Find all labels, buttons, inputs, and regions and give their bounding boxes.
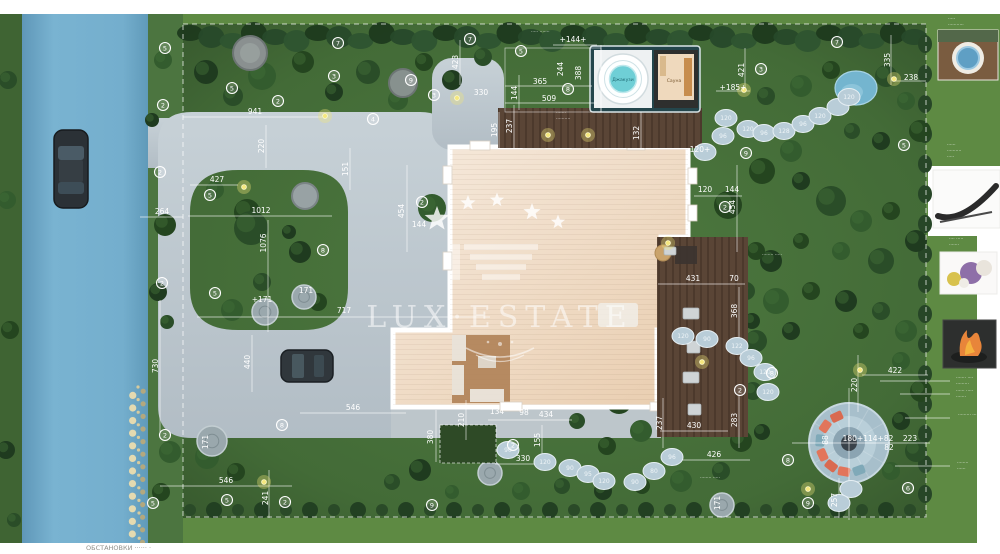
measurement-label: 426 bbox=[707, 450, 722, 459]
hedge-bush bbox=[624, 22, 650, 44]
measurement-label: 98 bbox=[519, 408, 529, 417]
tree-highlight bbox=[911, 122, 923, 134]
measurement-label: 509 bbox=[542, 94, 557, 103]
measurement-label: 155 bbox=[533, 433, 542, 448]
stone-size-label: 128 bbox=[778, 128, 790, 135]
micro-label: ····· ······· bbox=[531, 30, 550, 35]
tree-highlight bbox=[854, 324, 863, 333]
roof-block bbox=[470, 141, 490, 150]
plant-marker-number: 8 bbox=[321, 246, 325, 254]
hedge-bush bbox=[918, 485, 932, 503]
hedge-bush bbox=[686, 502, 702, 518]
tree-highlight bbox=[444, 72, 455, 83]
stone-size-label: 90 bbox=[566, 465, 574, 472]
pebble bbox=[137, 436, 140, 439]
tree-highlight bbox=[755, 425, 764, 434]
tree-highlight bbox=[0, 72, 10, 82]
tree-highlight bbox=[570, 414, 579, 423]
pebble bbox=[140, 502, 145, 507]
micro-label: ······ bbox=[957, 467, 966, 472]
hedge-bush bbox=[918, 215, 932, 233]
road bbox=[22, 14, 148, 543]
measurement-label: 237 bbox=[505, 119, 514, 134]
plant-marker-number: 9 bbox=[430, 501, 434, 509]
measurement-label: 171 bbox=[299, 286, 314, 295]
plant-marker-number: 8 bbox=[566, 85, 570, 93]
tree-highlight bbox=[873, 303, 883, 313]
measurement-label: 151 bbox=[341, 162, 350, 177]
hedge-bush bbox=[710, 26, 736, 48]
pebble bbox=[137, 486, 140, 489]
hedge-bush bbox=[398, 502, 414, 518]
measurement-label: 241 bbox=[261, 491, 270, 506]
measurement-label: 244 bbox=[556, 62, 565, 77]
stone-size-label: 120 bbox=[814, 113, 826, 120]
pebble bbox=[129, 430, 136, 437]
plant-marker-number: 3 bbox=[332, 72, 336, 80]
plant-marker-number: 5 bbox=[519, 47, 523, 55]
measurement-label: 1012 bbox=[251, 206, 270, 215]
tree-highlight bbox=[196, 62, 209, 75]
tree-highlight bbox=[897, 322, 909, 334]
hedge-bush bbox=[918, 155, 932, 173]
hedge-bush bbox=[918, 335, 932, 353]
plant-marker-number: 4 bbox=[371, 115, 375, 123]
tree-highlight bbox=[883, 203, 893, 213]
hedge-bush bbox=[734, 502, 750, 518]
measurement-label: 368 bbox=[730, 304, 739, 319]
measurement-label: 365 bbox=[533, 77, 548, 86]
micro-label: ·········· bbox=[556, 117, 570, 122]
plant-marker-number: 8 bbox=[770, 369, 774, 377]
landscape-plan-canvas: Джакузи Сауна bbox=[0, 0, 1000, 554]
tree-highlight bbox=[803, 283, 813, 293]
top-margin bbox=[0, 0, 1000, 14]
pebble bbox=[140, 489, 145, 494]
plant-marker-number: 2 bbox=[161, 101, 165, 109]
car-on-road bbox=[54, 130, 88, 208]
measurement-label: 210 bbox=[457, 413, 466, 428]
watermark-text: LUX·ESTATE bbox=[366, 300, 633, 335]
tree-highlight bbox=[599, 438, 609, 448]
pebble bbox=[129, 404, 136, 411]
tree-highlight bbox=[794, 234, 803, 243]
tree-highlight bbox=[747, 332, 759, 344]
hedge-bush bbox=[880, 22, 906, 44]
measurement-label: 717 bbox=[337, 306, 352, 315]
measurement-label: 335 bbox=[883, 53, 892, 68]
measurement-label: 431 bbox=[686, 274, 701, 283]
pebble bbox=[129, 442, 136, 449]
measurement-label: 388 bbox=[574, 66, 583, 81]
stone-size-label: 95 bbox=[584, 471, 592, 478]
millstone bbox=[478, 461, 502, 485]
measurement-label: 171 bbox=[713, 496, 722, 511]
hedge-bush bbox=[568, 504, 580, 516]
plant-marker-number: 2 bbox=[420, 198, 424, 206]
tree-highlight bbox=[223, 301, 235, 313]
site-plan-render: Джакузи Сауна bbox=[0, 0, 1000, 554]
hedge-bush bbox=[918, 305, 932, 323]
tree-highlight bbox=[2, 322, 12, 332]
corner-note: ОБСТАНОВКИ ······ · bbox=[86, 544, 151, 552]
tree-highlight bbox=[161, 316, 169, 324]
pebble bbox=[137, 499, 140, 502]
tree-highlight bbox=[758, 88, 768, 98]
plant-marker-number: 5 bbox=[208, 191, 212, 199]
pebble bbox=[138, 537, 141, 540]
measurement-label: 330 bbox=[516, 454, 531, 463]
micro-label: ········· ···· bbox=[958, 413, 978, 418]
stone-size-label: 90 bbox=[631, 479, 639, 486]
tree-highlight bbox=[877, 67, 889, 79]
hedge-bush bbox=[918, 275, 932, 293]
hedge-bush bbox=[520, 504, 532, 516]
plant-marker-number: 2 bbox=[163, 431, 167, 439]
left-grass-strip bbox=[0, 14, 22, 543]
hedge-bush bbox=[350, 502, 366, 518]
tree-highlight bbox=[294, 53, 306, 65]
measurement-label: 427 bbox=[210, 175, 225, 184]
measurement-label: 120+ bbox=[690, 145, 711, 154]
tree-highlight bbox=[632, 422, 644, 434]
pebble bbox=[137, 398, 140, 401]
hedge-bush bbox=[918, 65, 932, 83]
hedge-bush bbox=[856, 504, 868, 516]
tree-highlight bbox=[358, 62, 371, 75]
hedge-bush bbox=[904, 504, 916, 516]
hedge-bush bbox=[198, 26, 224, 48]
measurement-label: 171 bbox=[201, 435, 210, 450]
measurement-label: +171 bbox=[252, 295, 273, 304]
hedge-bush bbox=[590, 502, 606, 518]
plant-marker-number: 5 bbox=[213, 289, 217, 297]
pebble bbox=[138, 524, 141, 527]
tree-highlight bbox=[283, 226, 291, 234]
hedge-bush bbox=[664, 504, 676, 516]
tree-highlight bbox=[161, 443, 173, 455]
hedge-bush bbox=[878, 502, 894, 518]
garden-light bbox=[858, 368, 863, 373]
measurement-label: 70 bbox=[729, 274, 739, 283]
pebble bbox=[140, 477, 145, 482]
measurement-label: 421 bbox=[737, 63, 746, 78]
garden-light bbox=[262, 480, 267, 485]
hedge-bush bbox=[232, 504, 244, 516]
hedge-bush bbox=[328, 504, 340, 516]
pebble bbox=[137, 448, 140, 451]
tree-highlight bbox=[893, 353, 903, 363]
hedge-bush bbox=[542, 502, 558, 518]
micro-label: ······· bbox=[949, 243, 959, 248]
measurement-label: 380 bbox=[426, 430, 435, 445]
pebble bbox=[140, 439, 145, 444]
measurement-label: 238 bbox=[904, 73, 919, 82]
measurement-label: 430 bbox=[687, 421, 702, 430]
tree-highlight bbox=[156, 216, 168, 228]
tree-highlight bbox=[513, 483, 523, 493]
hedge-bush bbox=[494, 502, 510, 518]
pebble bbox=[137, 411, 140, 414]
tree-highlight bbox=[793, 173, 803, 183]
plant-marker-number: 9 bbox=[806, 499, 810, 507]
hedge-bush bbox=[760, 504, 772, 516]
pebble bbox=[129, 493, 136, 500]
plant-marker-number: 5 bbox=[163, 44, 167, 52]
measurement-label: +144+ bbox=[560, 35, 587, 44]
plant-marker-number: 2 bbox=[158, 168, 162, 176]
measurement-label: 220 bbox=[850, 378, 859, 393]
pebble bbox=[137, 423, 140, 426]
measurement-label: 195 bbox=[490, 123, 499, 138]
parked-car bbox=[281, 350, 333, 382]
tree-highlight bbox=[907, 442, 919, 454]
micro-label: ·········· bbox=[947, 149, 961, 154]
stone-size-label: 120 bbox=[598, 478, 610, 485]
tree-highlight bbox=[146, 114, 154, 122]
hedge-bush bbox=[369, 22, 395, 44]
measurement-label: 88 bbox=[821, 435, 830, 445]
measurement-label: 283 bbox=[730, 413, 739, 428]
measurement-label: 180+114+82 bbox=[843, 434, 894, 443]
measurement-label: 134 bbox=[490, 407, 505, 416]
pebble bbox=[137, 461, 140, 464]
garden-light bbox=[586, 133, 591, 138]
pebble bbox=[140, 426, 145, 431]
hedge-bush bbox=[616, 504, 628, 516]
plant-marker-number: 7 bbox=[835, 38, 839, 46]
micro-label: ······· bbox=[556, 111, 566, 116]
stone-size-label: 90 bbox=[703, 336, 711, 343]
plant-marker-number: 7 bbox=[336, 39, 340, 47]
stone-size-label: 80 bbox=[650, 468, 658, 475]
tree-highlight bbox=[765, 290, 779, 304]
hedge-bush bbox=[638, 502, 654, 518]
tree-highlight bbox=[446, 486, 454, 494]
tree-highlight bbox=[883, 463, 893, 473]
garden-light bbox=[323, 114, 328, 119]
plant-marker-number: 5 bbox=[230, 84, 234, 92]
tree-highlight bbox=[748, 243, 758, 253]
plant-marker-number: 9 bbox=[744, 149, 748, 157]
pebble bbox=[137, 474, 140, 477]
plant-marker-number: 5 bbox=[902, 141, 906, 149]
measurement-label: 330 bbox=[474, 88, 489, 97]
tree-highlight bbox=[782, 142, 794, 154]
tree-highlight bbox=[8, 514, 16, 522]
measurement-label: 454 bbox=[397, 204, 406, 219]
plant-marker-number: 2 bbox=[276, 97, 280, 105]
plant-marker-number: 7 bbox=[468, 35, 472, 43]
plant-marker-number: 2 bbox=[160, 279, 164, 287]
measurement-label: 546 bbox=[346, 403, 361, 412]
hedge-bush bbox=[472, 504, 484, 516]
stone-size-label: 120 bbox=[720, 115, 732, 122]
micro-label: ········· bbox=[956, 382, 969, 387]
tree-highlight bbox=[833, 243, 843, 253]
measurement-label: 730 bbox=[151, 359, 160, 374]
pebble bbox=[140, 464, 145, 469]
pebble bbox=[140, 527, 145, 532]
hammock-photo bbox=[933, 170, 1000, 228]
pebble bbox=[129, 417, 136, 424]
garden-light bbox=[700, 360, 705, 365]
measurement-label: 422 bbox=[888, 366, 903, 375]
hedge-bush bbox=[302, 502, 318, 518]
tree-highlight bbox=[475, 49, 485, 59]
tree-highlight bbox=[870, 250, 884, 264]
tree-highlight bbox=[837, 292, 849, 304]
pebble bbox=[129, 467, 136, 474]
plant-marker-number: 3 bbox=[432, 91, 436, 99]
stone-size-label: 120 bbox=[762, 389, 774, 396]
roof-block bbox=[688, 168, 697, 184]
pebble bbox=[140, 452, 145, 457]
micro-label: ········ bbox=[957, 461, 968, 466]
hedge-bush bbox=[918, 35, 932, 53]
hedge-bush bbox=[206, 502, 222, 518]
tree-highlight bbox=[672, 472, 684, 484]
pebble bbox=[129, 455, 136, 462]
stone-size-label: 120 bbox=[677, 333, 689, 340]
plant-marker-number: 3 bbox=[759, 65, 763, 73]
plant-marker-number: 8 bbox=[786, 456, 790, 464]
pergola bbox=[675, 246, 697, 264]
tree-highlight bbox=[385, 475, 394, 484]
tree-highlight bbox=[893, 413, 903, 423]
stone-size-label: 96 bbox=[799, 121, 807, 128]
stone-size-label: 96 bbox=[719, 133, 727, 140]
garden-light bbox=[242, 185, 247, 190]
pebble bbox=[140, 414, 145, 419]
measurement-label: +185+ bbox=[720, 83, 747, 92]
hedge-bush bbox=[376, 504, 388, 516]
tree-highlight bbox=[912, 382, 924, 394]
garden-light bbox=[892, 77, 897, 82]
hot-tub-photo bbox=[938, 30, 998, 80]
measurement-label: 237 bbox=[655, 416, 664, 431]
roof-block bbox=[688, 205, 697, 221]
pebble bbox=[129, 518, 136, 525]
tree-highlight bbox=[792, 77, 804, 89]
plant-marker-number: 5 bbox=[151, 499, 155, 507]
planting-bed bbox=[440, 425, 496, 463]
tree-highlight bbox=[751, 160, 765, 174]
micro-label: ······ ····· bbox=[956, 389, 973, 394]
measurement-label: 220 bbox=[257, 139, 266, 154]
tree-highlight bbox=[818, 188, 835, 205]
hedge-bush bbox=[446, 502, 462, 518]
jacuzzi-label: Джакузи bbox=[612, 77, 633, 83]
pebble bbox=[129, 530, 136, 537]
measurement-label: 144 bbox=[510, 86, 519, 101]
micro-label: ···· ····· bbox=[949, 237, 963, 242]
stone-size-label: 96 bbox=[668, 454, 676, 461]
fire-bowl-photo bbox=[943, 320, 996, 368]
measurement-label: 440 bbox=[243, 355, 252, 370]
hedge-bush bbox=[918, 425, 932, 443]
pebble bbox=[129, 392, 136, 399]
measurement-label: 423 bbox=[451, 55, 460, 70]
tree-highlight bbox=[411, 461, 423, 473]
measurement-label: 1076 bbox=[259, 233, 268, 252]
tree-highlight bbox=[237, 214, 256, 233]
hedge-bush bbox=[918, 95, 932, 113]
micro-label: ········ ····· bbox=[762, 253, 782, 258]
stone-size-label: 120 bbox=[742, 126, 754, 133]
tree-highlight bbox=[713, 463, 723, 473]
hedge-bush bbox=[752, 22, 778, 44]
tree-highlight bbox=[873, 133, 883, 143]
tree-highlight bbox=[845, 124, 854, 133]
roof-block bbox=[443, 166, 452, 184]
tree-highlight bbox=[898, 93, 908, 103]
pebble bbox=[137, 511, 140, 514]
micro-label: ········ ····· bbox=[700, 476, 720, 481]
pool-deck bbox=[498, 108, 702, 148]
plant-marker-number: 2 bbox=[738, 386, 742, 394]
stone-size-label: 120 bbox=[843, 94, 855, 101]
sauna-label: Сауна bbox=[667, 78, 682, 84]
tree-highlight bbox=[823, 62, 833, 72]
plant-marker-number: 9 bbox=[409, 76, 413, 84]
hedge-bush bbox=[782, 502, 798, 518]
micro-label: ······ bbox=[947, 143, 956, 148]
pebble bbox=[136, 385, 139, 388]
tree-highlight bbox=[254, 274, 264, 284]
pebble bbox=[129, 505, 136, 512]
tree-highlight bbox=[291, 243, 303, 255]
garden-light bbox=[455, 96, 460, 101]
hedge-bush bbox=[497, 22, 523, 44]
plant-marker-number: 2 bbox=[283, 498, 287, 506]
tree-highlight bbox=[907, 232, 919, 244]
pebble bbox=[129, 480, 136, 487]
tree-highlight bbox=[783, 323, 793, 333]
micro-label: ······· ···· bbox=[956, 376, 973, 381]
tree-highlight bbox=[326, 84, 336, 94]
garden-light bbox=[806, 487, 811, 492]
measurement-label: 434 bbox=[539, 410, 554, 419]
hedge-bush bbox=[184, 504, 196, 516]
measurement-label: 257 bbox=[830, 493, 839, 508]
stone-size-label: 122 bbox=[731, 343, 743, 350]
stone-size-label: 96 bbox=[760, 130, 768, 137]
tree-highlight bbox=[555, 479, 564, 488]
plant-marker-number: 6 bbox=[906, 484, 910, 492]
micro-label: ··········· bbox=[948, 23, 964, 28]
measurement-label: 144 bbox=[725, 185, 740, 194]
measurement-label: 223 bbox=[903, 434, 918, 443]
measurement-label: 546 bbox=[219, 476, 234, 485]
pebble bbox=[141, 389, 146, 394]
pebble bbox=[141, 401, 146, 406]
plant-marker-number: 2 bbox=[723, 203, 727, 211]
tree-highlight bbox=[852, 212, 864, 224]
garden-light bbox=[546, 133, 551, 138]
plant-marker-number: 2 bbox=[511, 441, 515, 449]
plant-marker-number: 5 bbox=[225, 496, 229, 504]
measurement-label: 132 bbox=[632, 126, 641, 141]
pebble bbox=[140, 515, 145, 520]
measurement-label: 264 bbox=[155, 207, 170, 216]
garden-light bbox=[666, 241, 671, 246]
stone-size-label: 120 bbox=[539, 459, 551, 466]
tree-highlight bbox=[416, 54, 426, 64]
tree-highlight bbox=[228, 464, 238, 474]
measurement-label: 144 bbox=[412, 220, 427, 229]
roof-block bbox=[443, 252, 452, 270]
